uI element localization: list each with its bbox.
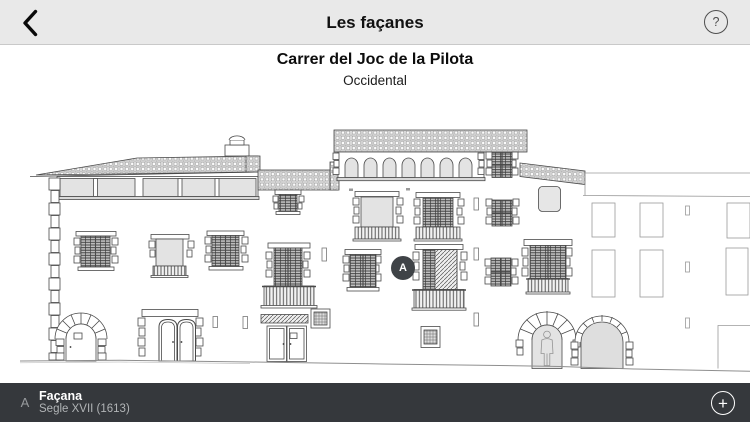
middle-building [330, 130, 585, 369]
left-building [30, 136, 259, 361]
add-button[interactable]: + [711, 391, 735, 415]
facade-drawing [0, 0, 750, 422]
footer-title: Façana [39, 389, 130, 403]
right-building [571, 173, 750, 369]
footer-subtitle: Segle XVII (1613) [39, 403, 130, 416]
footer-text: Façana Segle XVII (1613) [39, 389, 130, 416]
footer-marker-label: A [13, 395, 37, 410]
plus-icon: + [718, 395, 728, 412]
connecting-wing [246, 156, 338, 362]
facade-marker-a-label: A [399, 262, 407, 274]
ground-line [20, 360, 750, 371]
app-screen: Les façanes ? Carrer del Joc de la Pilot… [0, 0, 750, 422]
facade-marker-a[interactable]: A [391, 256, 415, 280]
footer-bar[interactable]: A Façana Segle XVII (1613) [0, 383, 750, 422]
elevation-linework [20, 130, 750, 371]
